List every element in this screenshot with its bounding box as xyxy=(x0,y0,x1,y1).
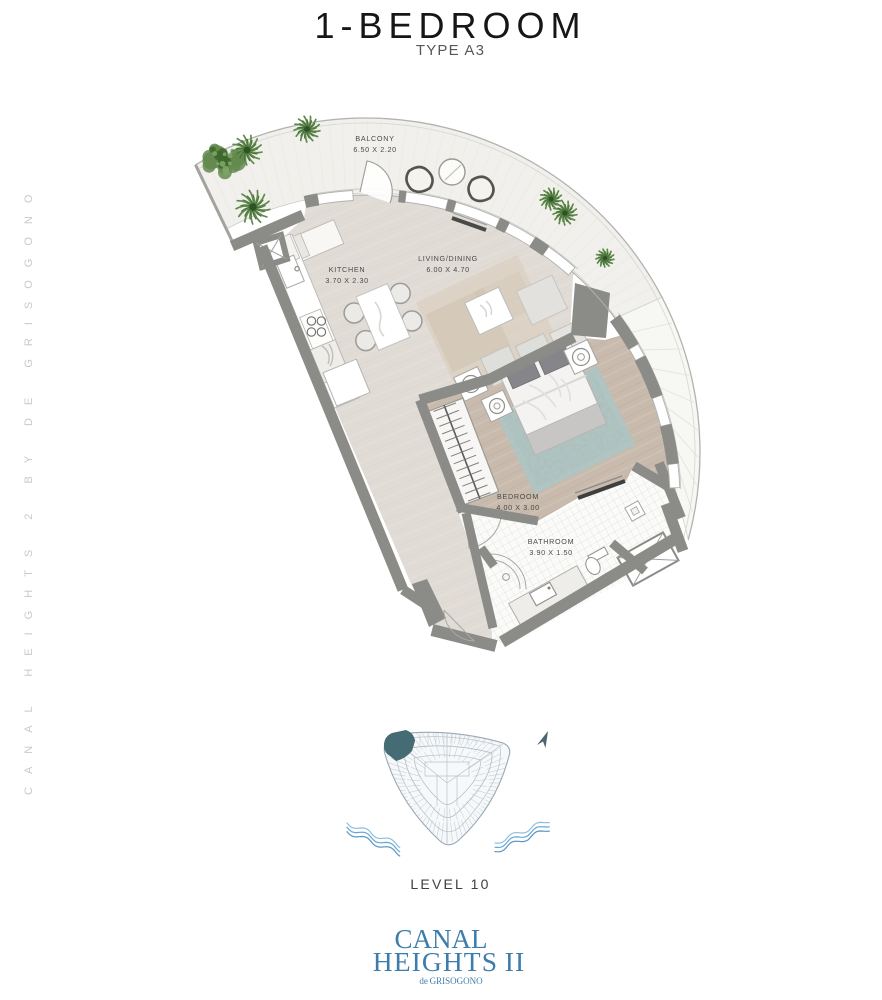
svg-text:3.70 X 2.30: 3.70 X 2.30 xyxy=(325,276,368,285)
svg-text:6.50 X 2.20: 6.50 X 2.20 xyxy=(353,145,396,154)
svg-text:BEDROOM: BEDROOM xyxy=(497,492,539,501)
svg-text:LIVING/DINING: LIVING/DINING xyxy=(418,254,478,263)
svg-text:BATHROOM: BATHROOM xyxy=(528,537,575,546)
svg-text:6.00 X 4.70: 6.00 X 4.70 xyxy=(426,265,469,274)
svg-text:4.00 X 3.00: 4.00 X 3.00 xyxy=(496,503,539,512)
svg-text:3.90 X 1.50: 3.90 X 1.50 xyxy=(529,548,572,557)
svg-text:BALCONY: BALCONY xyxy=(355,134,394,143)
svg-text:KITCHEN: KITCHEN xyxy=(329,265,365,274)
